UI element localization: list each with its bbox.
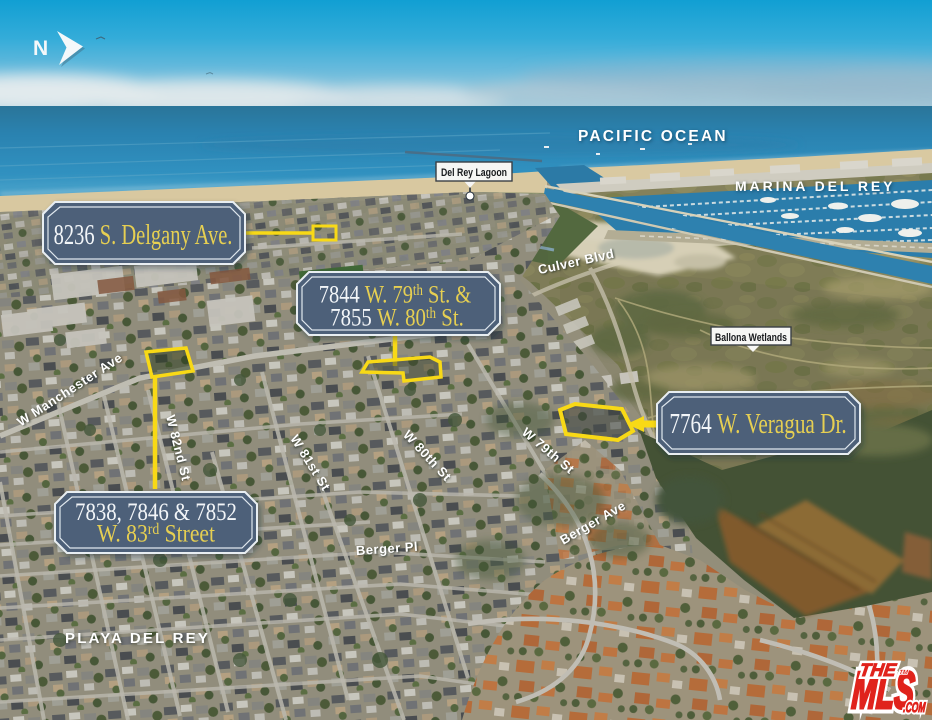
- svg-text:7855 W. 80th St.: 7855 W. 80th St.: [330, 304, 464, 332]
- svg-text:7764 W. Veragua Dr.: 7764 W. Veragua Dr.: [669, 409, 846, 439]
- svg-text:8236 S. Delgany Ave.: 8236 S. Delgany Ave.: [54, 220, 233, 251]
- svg-text:.COM: .COM: [903, 701, 926, 716]
- svg-text:MARINA DEL REY: MARINA DEL REY: [735, 178, 895, 194]
- svg-text:Ballona Wetlands: Ballona Wetlands: [715, 332, 787, 344]
- svg-text:Del Rey Lagoon: Del Rey Lagoon: [441, 167, 507, 179]
- svg-text:THE: THE: [858, 660, 898, 680]
- svg-text:N: N: [33, 37, 48, 60]
- svg-text:PACIFIC OCEAN: PACIFIC OCEAN: [578, 128, 728, 145]
- svg-text:PLAYA DEL REY: PLAYA DEL REY: [65, 630, 210, 647]
